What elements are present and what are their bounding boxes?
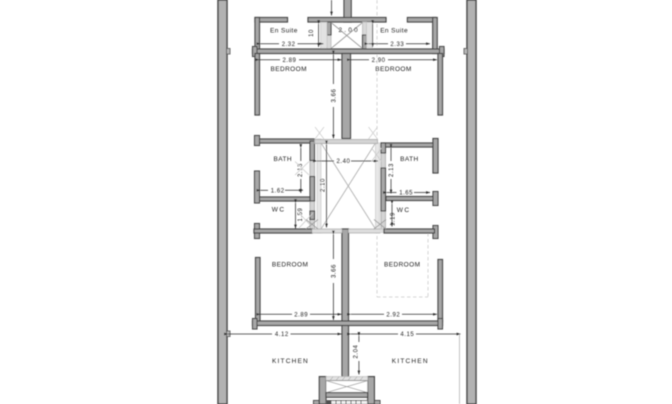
svg-text:3.66: 3.66 (332, 264, 338, 278)
svg-text:2.00: 2.00 (339, 27, 360, 34)
svg-text:BEDROOM: BEDROOM (384, 261, 420, 268)
svg-text:En Suite: En Suite (270, 27, 298, 34)
svg-text:3.66: 3.66 (332, 88, 338, 102)
svg-text:2.89: 2.89 (294, 313, 308, 319)
svg-text:2.10: 2.10 (320, 178, 326, 192)
svg-text:1.59: 1.59 (298, 207, 304, 221)
svg-text:2.32: 2.32 (282, 42, 296, 48)
svg-text:BATH: BATH (274, 156, 292, 163)
svg-text:1.19: 1.19 (391, 212, 397, 226)
svg-text:WC: WC (397, 207, 411, 214)
svg-text:BEDROOM: BEDROOM (271, 66, 307, 73)
svg-text:KITCHEN: KITCHEN (272, 358, 309, 365)
svg-text:1.65: 1.65 (399, 191, 413, 197)
svg-text:WC: WC (272, 206, 286, 213)
svg-text:2.13: 2.13 (389, 163, 395, 177)
svg-text:KITCHEN: KITCHEN (392, 358, 429, 365)
svg-text:4.12: 4.12 (275, 332, 289, 338)
svg-text:2.90: 2.90 (372, 58, 386, 64)
svg-text:BEDROOM: BEDROOM (375, 66, 411, 73)
svg-text:2.40: 2.40 (337, 159, 351, 165)
svg-text:10: 10 (309, 29, 315, 37)
svg-text:BEDROOM: BEDROOM (272, 261, 308, 268)
svg-text:En Suite: En Suite (380, 27, 408, 34)
svg-text:1.62: 1.62 (271, 189, 285, 195)
svg-text:2.04: 2.04 (354, 344, 360, 358)
svg-text:2.89: 2.89 (283, 58, 297, 64)
svg-text:BATH: BATH (400, 156, 418, 163)
svg-text:2.33: 2.33 (390, 42, 404, 48)
svg-text:2.92: 2.92 (386, 313, 400, 319)
svg-text:4.15: 4.15 (400, 332, 414, 338)
